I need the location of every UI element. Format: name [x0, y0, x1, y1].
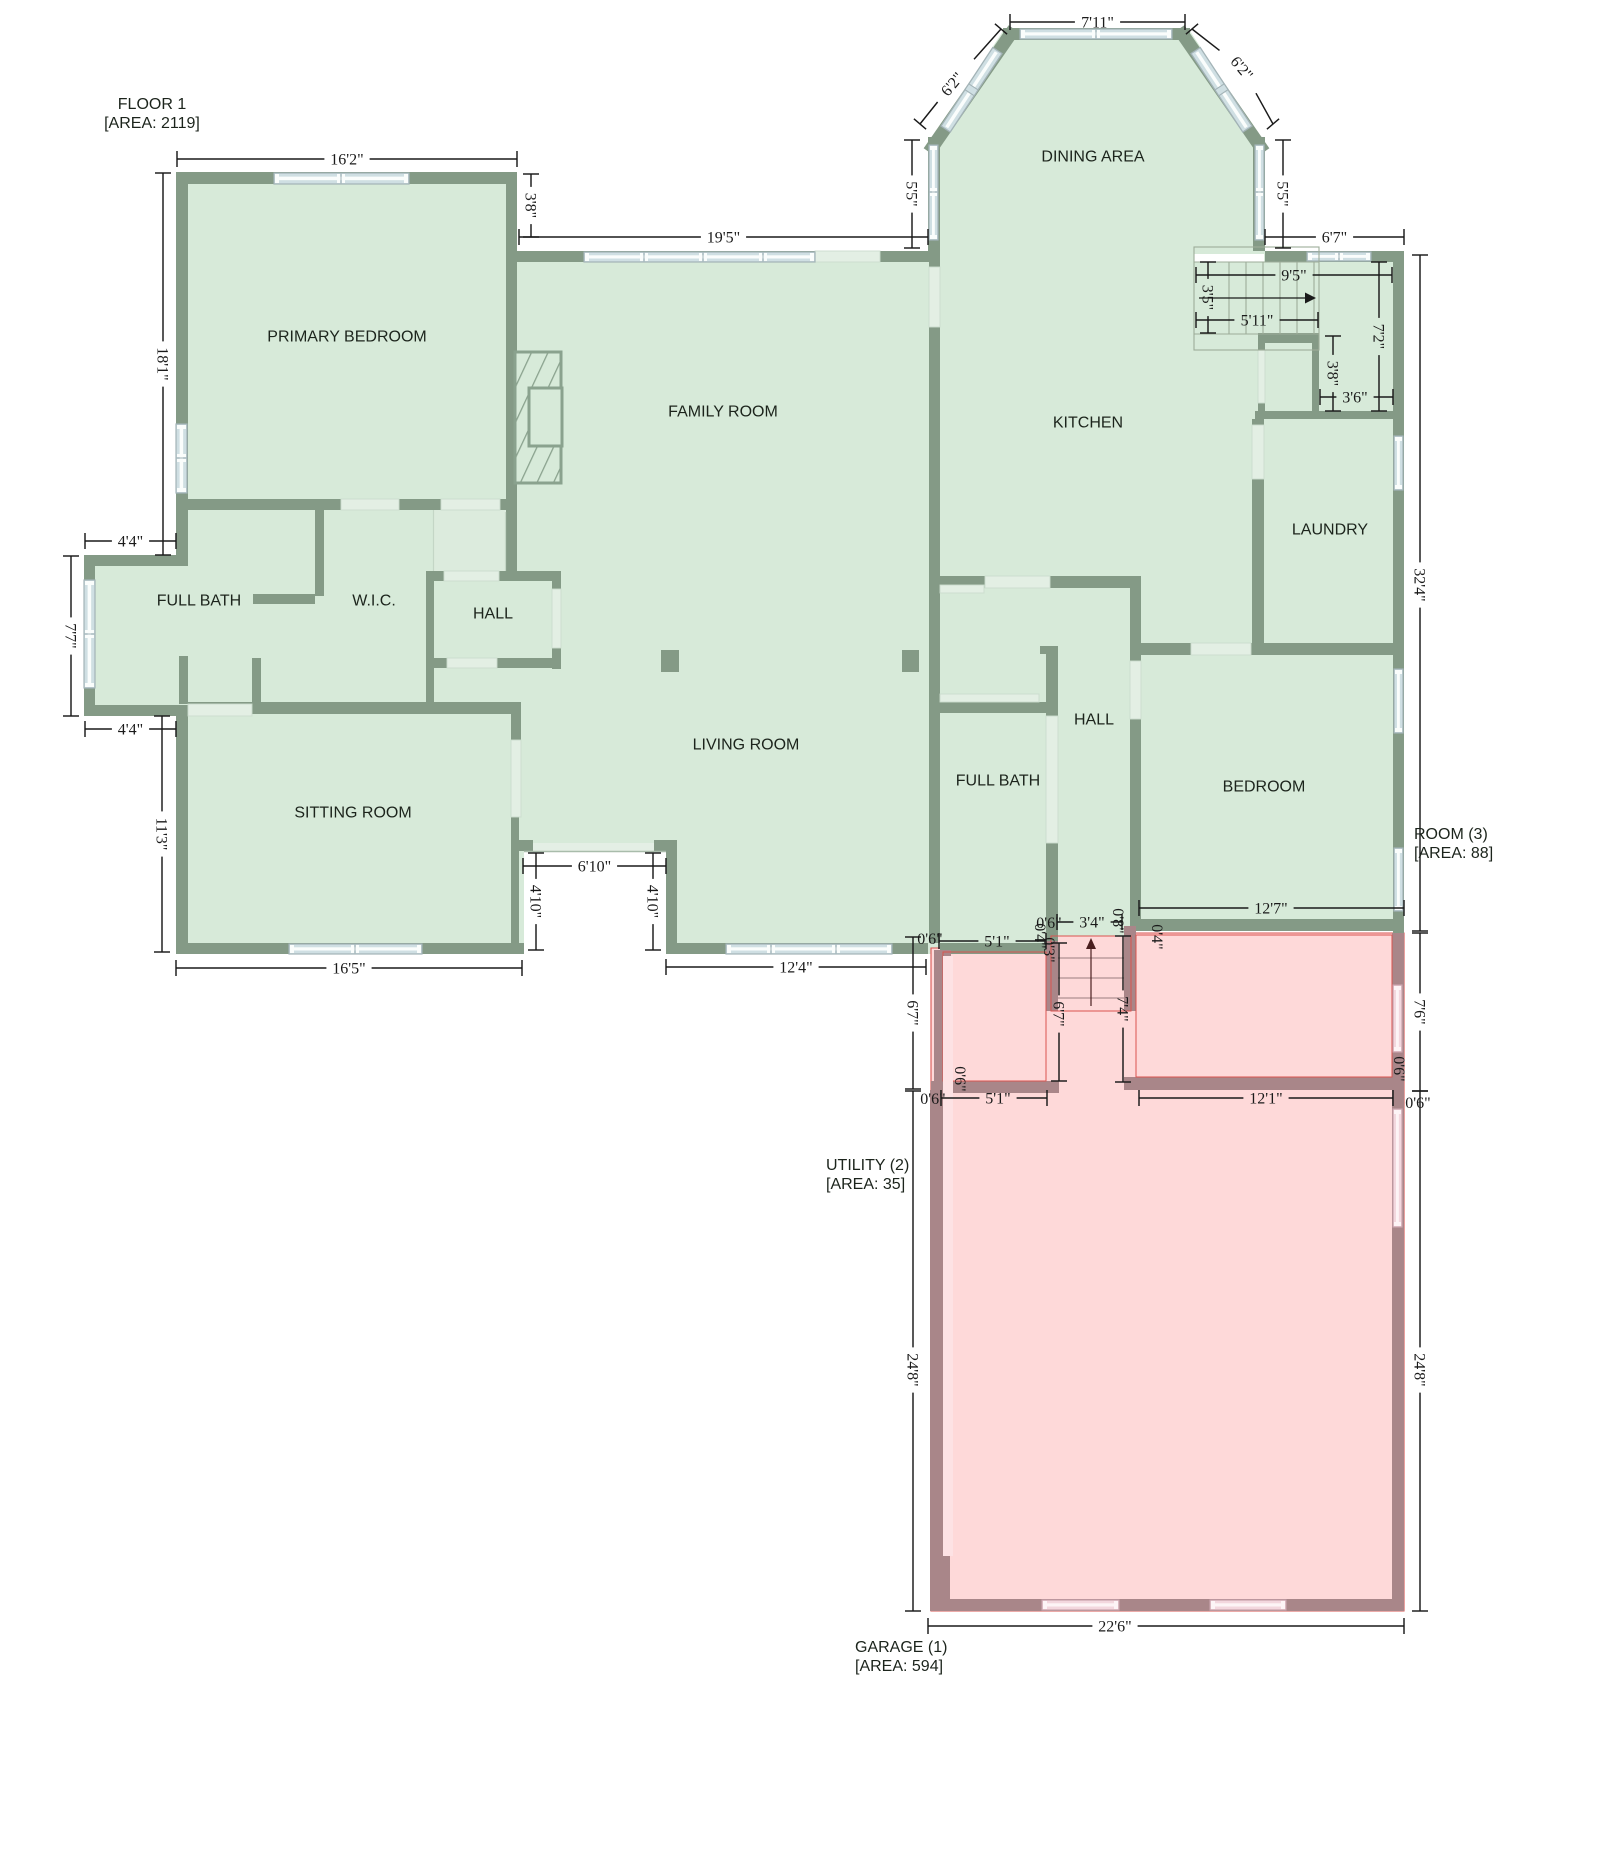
svg-text:12'4": 12'4" [779, 960, 812, 977]
svg-text:GARAGE (1): GARAGE (1) [855, 1639, 947, 1656]
svg-text:[AREA: 35]: [AREA: 35] [826, 1176, 905, 1193]
svg-text:16'2": 16'2" [330, 152, 363, 169]
svg-text:3'8": 3'8" [522, 193, 539, 218]
svg-text:ROOM (3): ROOM (3) [1414, 826, 1488, 843]
svg-text:6'7": 6'7" [1050, 1001, 1067, 1026]
svg-text:32'4": 32'4" [1411, 568, 1428, 601]
svg-text:12'7": 12'7" [1254, 901, 1287, 918]
svg-text:BEDROOM: BEDROOM [1223, 779, 1306, 796]
svg-text:7'2": 7'2" [1370, 324, 1387, 349]
svg-text:4'10": 4'10" [527, 885, 544, 918]
svg-text:24'8": 24'8" [1411, 1353, 1428, 1386]
svg-text:22'6": 22'6" [1098, 1619, 1131, 1636]
svg-text:5'1": 5'1" [985, 1091, 1010, 1108]
svg-text:9'5": 9'5" [1281, 268, 1306, 285]
svg-text:[AREA: 2119]: [AREA: 2119] [104, 115, 200, 132]
svg-text:5'1": 5'1" [984, 934, 1009, 951]
svg-text:FAMILY ROOM: FAMILY ROOM [668, 404, 778, 421]
svg-text:6'7": 6'7" [904, 1000, 921, 1025]
svg-text:0'6": 0'6" [1390, 1056, 1407, 1081]
svg-text:3'8": 3'8" [1324, 361, 1341, 386]
svg-text:0'6": 0'6" [1405, 1095, 1430, 1112]
svg-text:FLOOR 1: FLOOR 1 [118, 96, 187, 113]
svg-text:[AREA: 88]: [AREA: 88] [1414, 845, 1493, 862]
svg-text:0'3": 0'3" [1040, 937, 1057, 962]
svg-text:3'5": 3'5" [1199, 285, 1216, 310]
svg-text:4'4": 4'4" [118, 534, 143, 551]
svg-text:FULL BATH: FULL BATH [157, 593, 241, 610]
svg-text:6'7": 6'7" [1322, 230, 1347, 247]
svg-text:12'1": 12'1" [1249, 1091, 1282, 1108]
svg-text:11'3": 11'3" [153, 818, 170, 851]
svg-text:0'6": 0'6" [917, 931, 942, 948]
svg-text:SITTING ROOM: SITTING ROOM [294, 805, 411, 822]
svg-text:5'5": 5'5" [903, 181, 920, 206]
svg-text:LAUNDRY: LAUNDRY [1292, 522, 1369, 539]
svg-text:24'8": 24'8" [904, 1353, 921, 1386]
svg-text:0'6": 0'6" [920, 1091, 945, 1108]
svg-text:W.I.C.: W.I.C. [352, 593, 396, 610]
svg-text:[AREA: 594]: [AREA: 594] [855, 1658, 943, 1675]
svg-text:7'7": 7'7" [62, 623, 79, 648]
svg-text:6'10": 6'10" [578, 859, 611, 876]
svg-text:5'11": 5'11" [1241, 313, 1274, 330]
svg-text:DINING AREA: DINING AREA [1041, 149, 1144, 166]
svg-text:5'5": 5'5" [1274, 181, 1291, 206]
svg-text:4'4": 4'4" [118, 722, 143, 739]
svg-text:3'4": 3'4" [1079, 915, 1104, 932]
svg-text:LIVING ROOM: LIVING ROOM [693, 737, 800, 754]
svg-text:0'8": 0'8" [1109, 908, 1126, 933]
svg-text:UTILITY (2): UTILITY (2) [826, 1157, 909, 1174]
svg-text:18'1": 18'1" [154, 347, 171, 380]
svg-text:7'4": 7'4" [1114, 996, 1131, 1021]
svg-text:3'6": 3'6" [1342, 390, 1367, 407]
svg-text:7'11": 7'11" [1081, 15, 1114, 32]
svg-text:7'6": 7'6" [1411, 999, 1428, 1024]
svg-text:FULL BATH: FULL BATH [956, 773, 1040, 790]
svg-text:19'5": 19'5" [707, 230, 740, 247]
svg-text:HALL: HALL [1074, 712, 1114, 729]
svg-text:16'5": 16'5" [332, 961, 365, 978]
svg-text:0'4": 0'4" [1148, 924, 1165, 949]
svg-text:0'6": 0'6" [951, 1066, 968, 1091]
svg-text:4'10": 4'10" [644, 885, 661, 918]
svg-text:KITCHEN: KITCHEN [1053, 415, 1123, 432]
svg-text:HALL: HALL [473, 606, 513, 623]
svg-text:PRIMARY BEDROOM: PRIMARY BEDROOM [267, 329, 426, 346]
